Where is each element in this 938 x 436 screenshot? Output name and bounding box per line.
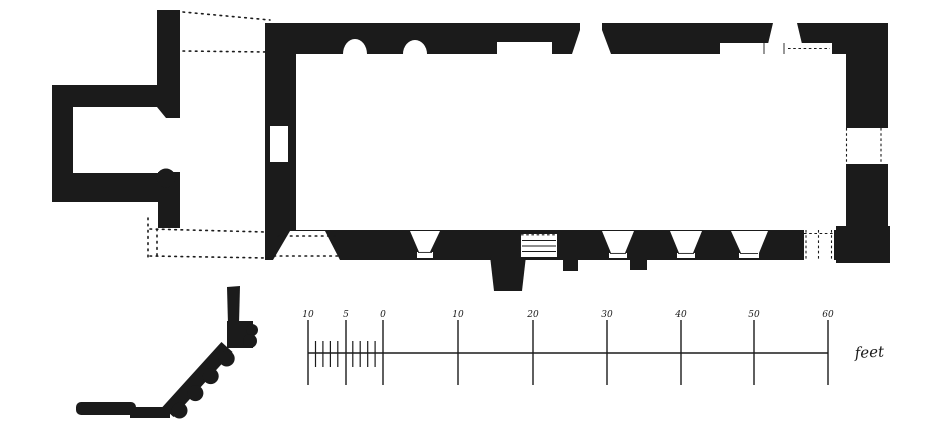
scale-unit-label: feet xyxy=(853,342,885,362)
former-wall-dots-south-2 xyxy=(150,256,268,258)
north-window-splay xyxy=(768,23,802,44)
former-wall-dots-south-1 xyxy=(150,229,266,232)
east-window xyxy=(846,128,888,164)
moulding-base-step xyxy=(130,407,170,418)
scale-tick-label: 10 xyxy=(452,310,464,320)
moulding-base-bar xyxy=(76,402,136,415)
annexe-respond xyxy=(157,169,176,188)
former-wall-dots-north-1 xyxy=(183,12,270,20)
east-window-gap xyxy=(846,128,888,164)
moulding-scallop-2 xyxy=(203,368,219,384)
south-blocked-doorway xyxy=(804,230,834,260)
south-buttress xyxy=(490,256,526,291)
se-corner-block xyxy=(836,226,890,263)
moulding-scallop-3 xyxy=(187,385,203,401)
moulding-roll-1 xyxy=(246,324,258,336)
south-wall-stub-1 xyxy=(563,258,578,271)
scale-bar: 1050102030405060 xyxy=(302,310,834,385)
moulding-scallop-1 xyxy=(219,351,235,367)
south-window-a-sill xyxy=(417,252,433,258)
scale-tick-label: 40 xyxy=(674,310,687,320)
scale-tick-label: 20 xyxy=(526,310,539,320)
south-blocked-doorway-gap xyxy=(804,230,834,260)
moulding-profile xyxy=(76,286,258,419)
moulding-scallop-4 xyxy=(172,403,188,419)
former-wall-dots-north-2 xyxy=(183,51,267,52)
moulding-roll-2 xyxy=(243,334,257,348)
plan-drawing: 1050102030405060 feet xyxy=(0,0,938,436)
scale-tick-label: 10 xyxy=(302,310,314,320)
moulding-vertical-bar xyxy=(227,286,240,325)
moulding-chamfer-band xyxy=(168,347,227,412)
south-wall xyxy=(265,230,890,260)
west-annexe xyxy=(52,10,180,228)
annexe-north-wall-fragment xyxy=(157,10,180,118)
scale-tick-label: 50 xyxy=(748,310,760,320)
scale-tick-label: 60 xyxy=(822,310,834,320)
scale-tick-label: 5 xyxy=(343,310,349,320)
south-window-b xyxy=(521,234,557,257)
south-wall-stub-2 xyxy=(630,256,647,270)
main-building xyxy=(265,23,890,291)
scale-tick-label: 30 xyxy=(601,310,613,320)
annexe-south-wall xyxy=(52,173,158,202)
west-doorway-recess xyxy=(270,126,288,162)
scale-tick-label: 0 xyxy=(380,310,386,320)
north-recess xyxy=(497,42,552,54)
south-window-b-gap xyxy=(521,234,557,257)
plate-figure: 1050102030405060 feet xyxy=(0,0,938,436)
